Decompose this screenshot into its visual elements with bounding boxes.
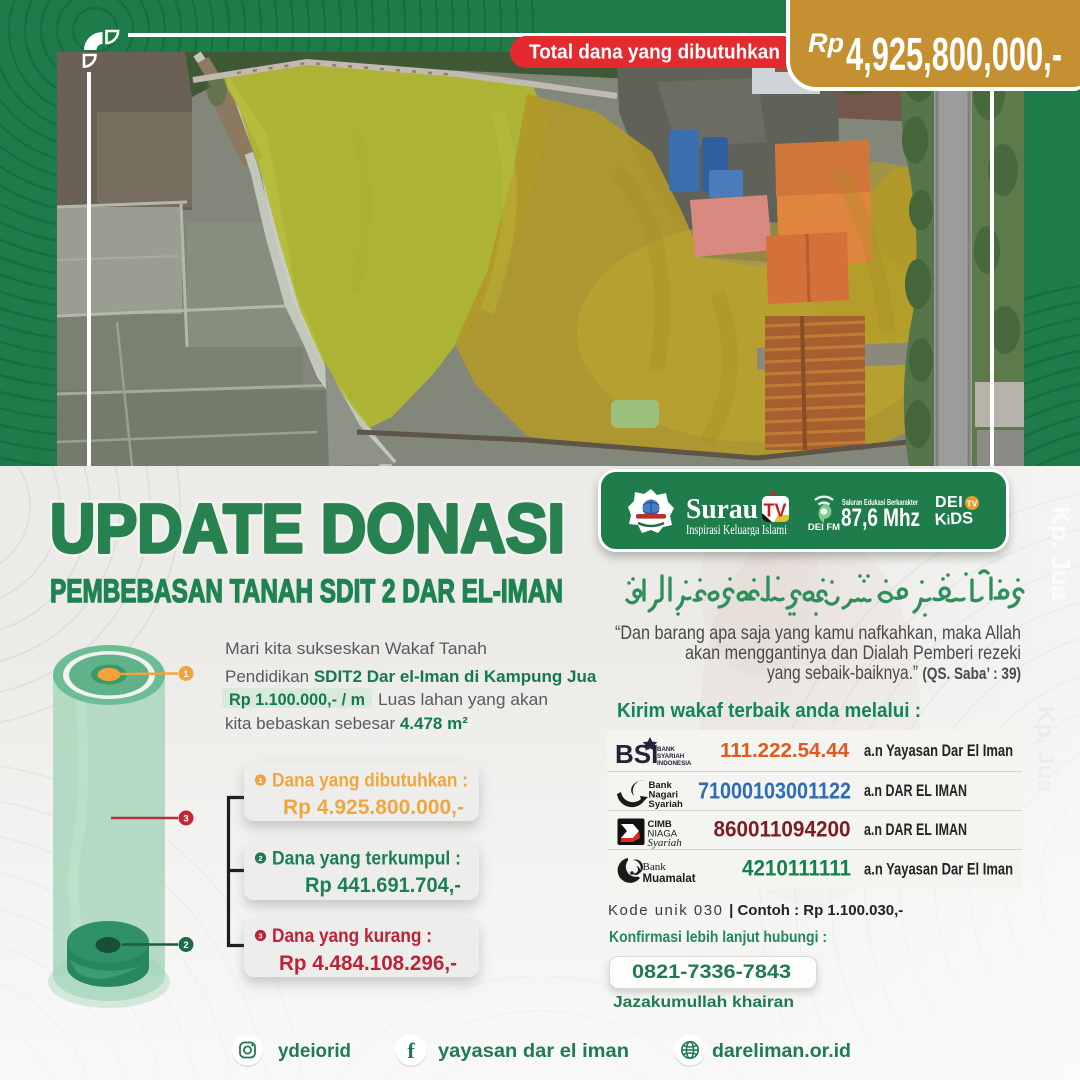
svg-text:f: f [407,1038,415,1063]
svg-text:Luas lahan yang akan: Luas lahan yang akan [378,690,548,709]
svg-text:Syariah: Syariah [649,799,684,810]
svg-text:SYARIAH: SYARIAH [657,753,685,760]
svg-text:Surau: Surau [686,494,758,525]
svg-text:a.n DAR EL IMAN: a.n DAR EL IMAN [864,821,967,839]
svg-text:DEI: DEI [935,494,963,511]
svg-text:yang sebaik-baiknya.” (QS. Sab: yang sebaik-baiknya.” (QS. Saba’ : 39) [767,662,1021,684]
svg-text:3: 3 [258,931,262,940]
svg-text:DEI FM: DEI FM [808,522,840,532]
svg-text:4,925,800,000,-: 4,925,800,000,- [846,28,1062,80]
svg-text:Rp 4.925.800.000,-: Rp 4.925.800.000,- [283,795,464,819]
svg-text:kita bebaskan sebesar 4.478 m²: kita bebaskan sebesar 4.478 m² [225,714,468,733]
svg-text:Kode unik 030 | Contoh : Rp 1.: Kode unik 030 | Contoh : Rp 1.100.030,- [608,902,903,919]
svg-text:Inspirasi Keluarga Islami: Inspirasi Keluarga Islami [686,522,787,536]
svg-text:3: 3 [183,814,188,825]
svg-text:Jazakumullah khairan: Jazakumullah khairan [613,994,794,1011]
svg-text:111.222.54.44: 111.222.54.44 [720,740,850,762]
svg-text:akan menggantinya dan Dialah P: akan menggantinya dan Dialah Pemberi rez… [685,642,1021,664]
svg-text:Pendidikan SDIT2 Dar el-Iman: Pendidikan SDIT2 Dar el-Iman di Kampung … [225,667,597,686]
svg-text:2: 2 [258,854,262,863]
svg-text:0821-7336-7843: 0821-7336-7843 [632,962,791,983]
svg-text:INDONESIA: INDONESIA [657,760,692,767]
svg-text:UPDATE DONASI: UPDATE DONASI [50,490,565,567]
svg-text:a.n Yayasan Dar El Iman: a.n Yayasan Dar El Iman [864,861,1013,879]
svg-text:Rp 4.484.108.296,-: Rp 4.484.108.296,- [279,951,457,975]
svg-text:BANK: BANK [657,746,675,753]
svg-text:Dana yang dibutuhkan :: Dana yang dibutuhkan : [272,771,468,792]
svg-text:KiDS: KiDS [934,509,973,529]
svg-text:1: 1 [183,669,189,680]
svg-text:Dana yang terkumpul :: Dana yang terkumpul : [272,849,461,870]
svg-text:Mari kita sukseskan Wakaf Tana: Mari kita sukseskan Wakaf Tanah [225,639,487,658]
svg-text:4210111111: 4210111111 [742,856,851,881]
svg-text:1: 1 [258,776,262,785]
svg-text:TV: TV [967,499,978,509]
svg-text:yayasan dar el iman: yayasan dar el iman [438,1041,629,1062]
svg-text:Total dana yang dibutuhkan: Total dana yang dibutuhkan [529,42,780,64]
svg-text:71000103001122: 71000103001122 [698,778,851,804]
svg-text:Rp 441.691.704,-: Rp 441.691.704,- [305,873,461,897]
svg-text:Konfirmasi lebih lanjut hubung: Konfirmasi lebih lanjut hubungi : [609,929,827,946]
svg-text:a.n DAR EL IMAN: a.n DAR EL IMAN [864,782,967,800]
svg-text:Dana yang kurang :: Dana yang kurang : [272,926,432,947]
svg-text:dareliman.or.id: dareliman.or.id [712,1041,851,1062]
svg-text:Rp: Rp [808,28,844,58]
svg-text:Bank: Bank [643,861,667,873]
svg-text:Rp 1.100.000,- / m: Rp 1.100.000,- / m [229,690,365,709]
svg-text:Syariah: Syariah [648,837,683,849]
svg-text:TV: TV [764,501,787,521]
svg-text:a.n Yayasan Dar El Iman: a.n Yayasan Dar El Iman [864,742,1013,760]
svg-text:Muamalat: Muamalat [643,873,696,885]
svg-text:ydeiorid: ydeiorid [278,1041,351,1062]
svg-text:PEMBEBASAN TANAH SDIT 2 DAR EL: PEMBEBASAN TANAH SDIT 2 DAR EL-IMAN [50,573,563,609]
svg-text:860011094200: 860011094200 [714,817,851,842]
svg-text:87,6 Mhz: 87,6 Mhz [841,504,920,532]
svg-text:Kirim wakaf terbaik anda melal: Kirim wakaf terbaik anda melalui : [617,700,921,722]
svg-text:“Dan barang apa saja yang kamu: “Dan barang apa saja yang kamu nafkahkan… [615,622,1021,644]
svg-text:2: 2 [183,940,188,951]
